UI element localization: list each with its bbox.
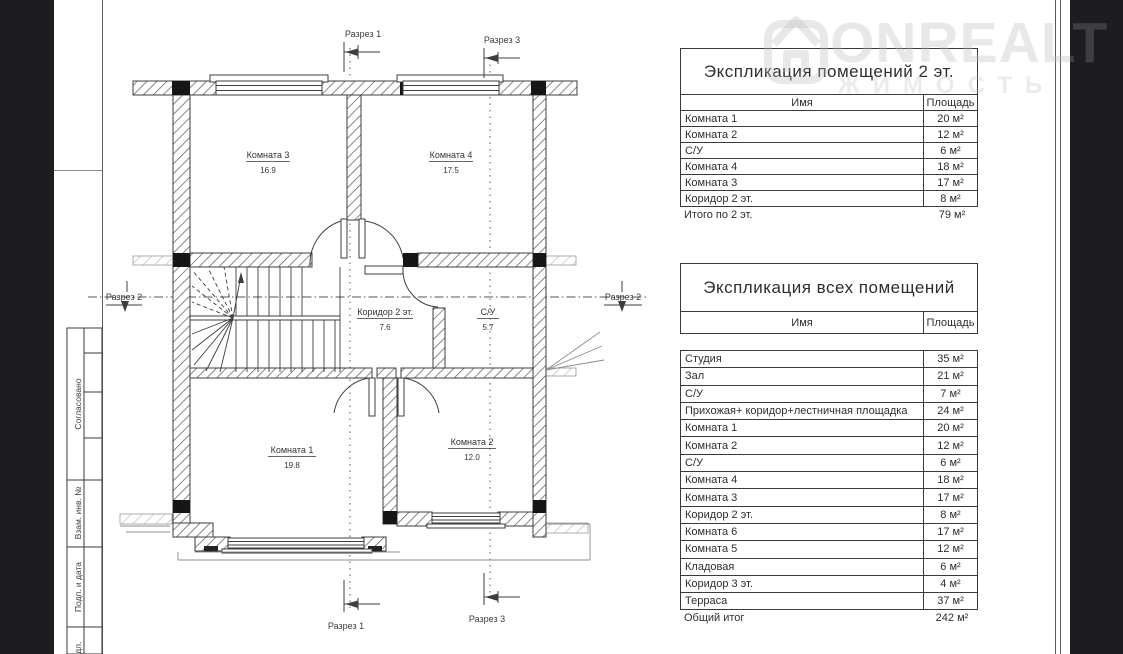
- table-total-row: Итого по 2 эт. 79 м²: [680, 207, 978, 221]
- room-name-cell: Комната 4: [681, 472, 924, 488]
- table-row: Коридор 2 эт.8 м²: [681, 506, 977, 523]
- table-header: Имя Площадь: [680, 312, 978, 334]
- room-area-cell: 20 м²: [924, 420, 977, 436]
- table-row: Комната 212 м²: [681, 126, 977, 142]
- room-name-cell: Комната 2: [681, 437, 924, 453]
- table-row: Прихожая+ коридор+лестничная площадка24 …: [681, 402, 977, 419]
- table-row: Зал21 м²: [681, 367, 977, 384]
- room-area-cell: 17 м²: [924, 175, 977, 190]
- table-body: Студия35 м²Зал21 м²С/У7 м²Прихожая+ кори…: [680, 350, 978, 610]
- table-row: С/У6 м²: [681, 142, 977, 158]
- table-row: Студия35 м²: [681, 351, 977, 367]
- room-name-cell: Коридор 2 эт.: [681, 191, 924, 206]
- section-label-razrez2-right: Разрез 2: [605, 292, 641, 302]
- section-label-razrez3-top: Разрез 3: [484, 35, 520, 45]
- room-area-cell: 12 м²: [924, 541, 977, 557]
- room-name-cell: Коридор 3 эт.: [681, 576, 924, 592]
- total-label: Общий итог: [680, 612, 926, 624]
- room-label-komnata4: Комната 4 17.5: [429, 150, 473, 175]
- room-label-komnata1: Комната 1 19.8: [268, 445, 316, 470]
- room-label-komnata2: Комната 2 12.0: [448, 437, 496, 462]
- room-area-cell: 18 м²: [924, 159, 977, 174]
- total-value: 79 м²: [926, 209, 978, 221]
- titleblock-vzam: Взам. инв. №: [73, 487, 83, 540]
- table-row: Комната 418 м²: [681, 158, 977, 174]
- titleblock-inv: Инв. № подл.: [73, 642, 83, 654]
- room-name-cell: Комната 2: [681, 127, 924, 142]
- room-area-cell: 12 м²: [924, 127, 977, 142]
- section-label-razrez1-top: Разрез 1: [345, 29, 381, 39]
- table-row: Коридор 3 эт.4 м²: [681, 575, 977, 592]
- room-area-cell: 8 м²: [924, 507, 977, 523]
- right-black-bar: ONREALT ЖИМОСТЬ: [1070, 0, 1123, 654]
- room-area-cell: 17 м²: [924, 524, 977, 540]
- svg-text:Коридор 2 эт.: Коридор 2 эт.: [357, 307, 413, 317]
- table-row: С/У7 м²: [681, 385, 977, 402]
- room-label-su: С/У 5.7: [477, 307, 499, 332]
- room-name-cell: С/У: [681, 143, 924, 158]
- room-name-cell: Комната 6: [681, 524, 924, 540]
- column-header-area: Площадь: [924, 95, 977, 110]
- room-area-cell: 17 м²: [924, 489, 977, 505]
- drawing-sheet: Согласовано Взам. инв. № Подп. и дата Ин…: [0, 0, 1123, 654]
- doors: [310, 219, 439, 416]
- title-block-labels: Согласовано Взам. инв. № Подп. и дата Ин…: [73, 378, 83, 654]
- table-row: С/У6 м²: [681, 454, 977, 471]
- room-name-cell: Комната 4: [681, 159, 924, 174]
- svg-text:Комната 1: Комната 1: [271, 445, 314, 455]
- room-area-cell: 18 м²: [924, 472, 977, 488]
- room-name-cell: Студия: [681, 351, 924, 367]
- table-row: Комната 120 м²: [681, 111, 977, 126]
- table-row: Комната 617 м²: [681, 523, 977, 540]
- room-area-cell: 6 м²: [924, 559, 977, 575]
- room-labels: Комната 3 16.9 Комната 4 17.5 Коридор 2 …: [246, 150, 499, 470]
- table-total-row: Общий итог 242 м²: [680, 610, 978, 624]
- watermark-brand-on-bar: ONREALT: [1070, 10, 1108, 76]
- room-name-cell: Комната 5: [681, 541, 924, 557]
- section-label-razrez1-bottom: Разрез 1: [328, 621, 364, 631]
- table-row: Кладовая6 м²: [681, 558, 977, 575]
- titleblock-podp: Подп. и дата: [73, 562, 83, 612]
- room-name-cell: С/У: [681, 455, 924, 471]
- column-header-name: Имя: [681, 312, 924, 333]
- table-row: Комната 512 м²: [681, 540, 977, 557]
- table-row: Комната 418 м²: [681, 471, 977, 488]
- room-area-cell: 21 м²: [924, 368, 977, 384]
- column-header-area: Площадь: [924, 312, 977, 333]
- svg-text:19.8: 19.8: [284, 461, 300, 470]
- table-title: Экспликация всех помещений: [680, 263, 978, 312]
- room-name-cell: Кладовая: [681, 559, 924, 575]
- table-row: Терраса37 м²: [681, 592, 977, 609]
- table-row: Коридор 2 эт.8 м²: [681, 190, 977, 206]
- svg-text:12.0: 12.0: [464, 453, 480, 462]
- room-name-cell: Зал: [681, 368, 924, 384]
- room-name-cell: Прихожая+ коридор+лестничная площадка: [681, 403, 924, 419]
- room-name-cell: Коридор 2 эт.: [681, 507, 924, 523]
- room-area-cell: 6 м²: [924, 455, 977, 471]
- room-name-cell: Терраса: [681, 593, 924, 609]
- room-area-cell: 37 м²: [924, 593, 977, 609]
- room-area-cell: 7 м²: [924, 386, 977, 402]
- svg-text:Комната 2: Комната 2: [451, 437, 494, 447]
- room-area-cell: 8 м²: [924, 191, 977, 206]
- table-row: Комната 212 м²: [681, 436, 977, 453]
- explication-table-all: Экспликация всех помещений Имя Площадь С…: [680, 263, 978, 624]
- table-row: Комната 317 м²: [681, 488, 977, 505]
- svg-text:Комната 4: Комната 4: [430, 150, 473, 160]
- onrealt-house-icon: [754, 2, 836, 102]
- section-label-razrez2-left: Разрез 2: [106, 292, 142, 302]
- room-area-cell: 12 м²: [924, 437, 977, 453]
- svg-text:16.9: 16.9: [260, 166, 276, 175]
- svg-text:5.7: 5.7: [482, 323, 494, 332]
- section-label-razrez3-bottom: Разрез 3: [469, 614, 505, 624]
- room-name-cell: Комната 3: [681, 175, 924, 190]
- room-area-cell: 6 м²: [924, 143, 977, 158]
- svg-text:С/У: С/У: [481, 307, 496, 317]
- room-area-cell: 20 м²: [924, 111, 977, 126]
- room-name-cell: Комната 3: [681, 489, 924, 505]
- room-label-koridor: Коридор 2 эт. 7.6: [357, 307, 413, 332]
- staircase: [190, 267, 340, 372]
- svg-text:Комната 3: Комната 3: [247, 150, 290, 160]
- table-body: Комната 120 м²Комната 212 м²С/У6 м²Комна…: [680, 111, 978, 207]
- room-name-cell: Комната 1: [681, 420, 924, 436]
- room-name-cell: С/У: [681, 386, 924, 402]
- room-area-cell: 4 м²: [924, 576, 977, 592]
- total-label: Итого по 2 эт.: [680, 209, 926, 221]
- room-area-cell: 24 м²: [924, 403, 977, 419]
- room-area-cell: 35 м²: [924, 351, 977, 367]
- titleblock-soglasovano: Согласовано: [73, 378, 83, 429]
- svg-text:17.5: 17.5: [443, 166, 459, 175]
- table-row: Комната 317 м²: [681, 174, 977, 190]
- table-row: Комната 120 м²: [681, 419, 977, 436]
- total-value: 242 м²: [926, 612, 978, 624]
- svg-text:7.6: 7.6: [379, 323, 391, 332]
- left-black-bar: [0, 0, 54, 654]
- room-name-cell: Комната 1: [681, 111, 924, 126]
- room-label-komnata3: Комната 3 16.9: [246, 150, 290, 175]
